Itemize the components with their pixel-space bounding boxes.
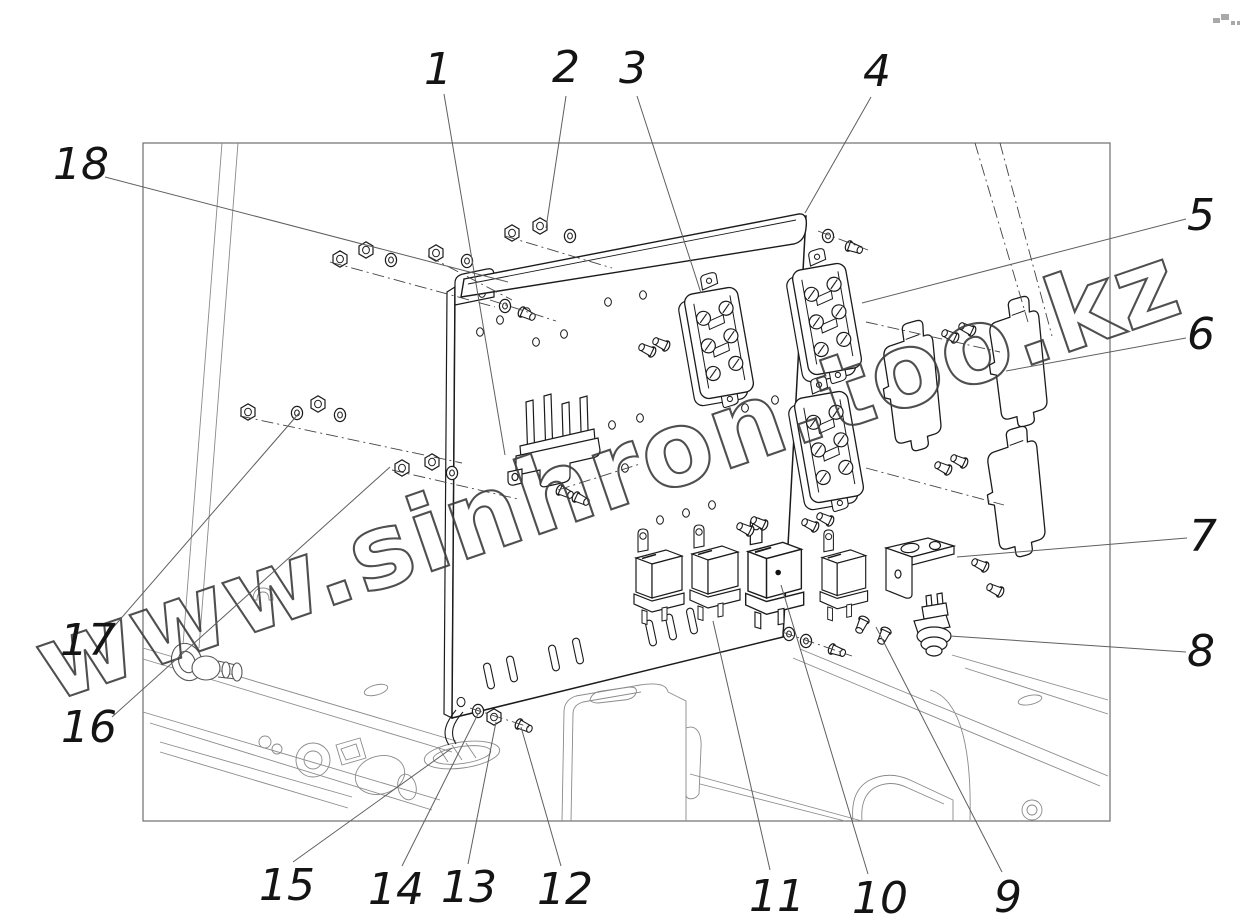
leader-line-14 bbox=[402, 714, 478, 866]
leader-line-12 bbox=[521, 727, 561, 866]
leader-line-7 bbox=[957, 538, 1187, 557]
callout-number-4: 4 bbox=[863, 46, 891, 97]
corner-smudge bbox=[1213, 14, 1240, 25]
callout-number-16: 16 bbox=[61, 702, 117, 753]
callout-number-14: 14 bbox=[368, 864, 424, 915]
callout-number-18: 18 bbox=[53, 139, 109, 190]
callout-number-17: 17 bbox=[60, 615, 116, 666]
callout-number-8: 8 bbox=[1187, 626, 1215, 677]
callout-number-3: 3 bbox=[619, 43, 647, 94]
exploded-parts-diagram: www.sinhron.too.kz 123456789101112131415… bbox=[0, 0, 1242, 916]
leader-line-18 bbox=[105, 177, 508, 282]
callout-number-15: 15 bbox=[259, 860, 315, 911]
sensor-switch bbox=[914, 593, 951, 656]
callout-number-2: 2 bbox=[552, 42, 580, 93]
leader-line-13 bbox=[468, 722, 496, 864]
callout-number-6: 6 bbox=[1187, 309, 1215, 360]
callout-number-11: 11 bbox=[749, 871, 805, 916]
leader-line-10 bbox=[781, 585, 868, 874]
callout-number-7: 7 bbox=[1189, 511, 1217, 562]
leader-line-15 bbox=[293, 748, 452, 862]
callout-number-12: 12 bbox=[537, 864, 593, 915]
fuse-cover-3 bbox=[979, 425, 1052, 560]
angle-bracket bbox=[886, 538, 954, 598]
relay-4 bbox=[820, 530, 868, 621]
leader-line-2 bbox=[546, 96, 566, 228]
callout-number-1: 1 bbox=[424, 44, 452, 95]
callout-number-9: 9 bbox=[994, 872, 1022, 916]
callout-number-5: 5 bbox=[1187, 190, 1215, 241]
diagram-page: www.sinhron.too.kz 123456789101112131415… bbox=[0, 0, 1242, 916]
leader-line-11 bbox=[713, 621, 770, 870]
leader-line-8 bbox=[950, 636, 1186, 652]
callout-number-10: 10 bbox=[852, 873, 908, 916]
callout-number-13: 13 bbox=[441, 862, 497, 913]
leader-line-4 bbox=[805, 97, 871, 213]
